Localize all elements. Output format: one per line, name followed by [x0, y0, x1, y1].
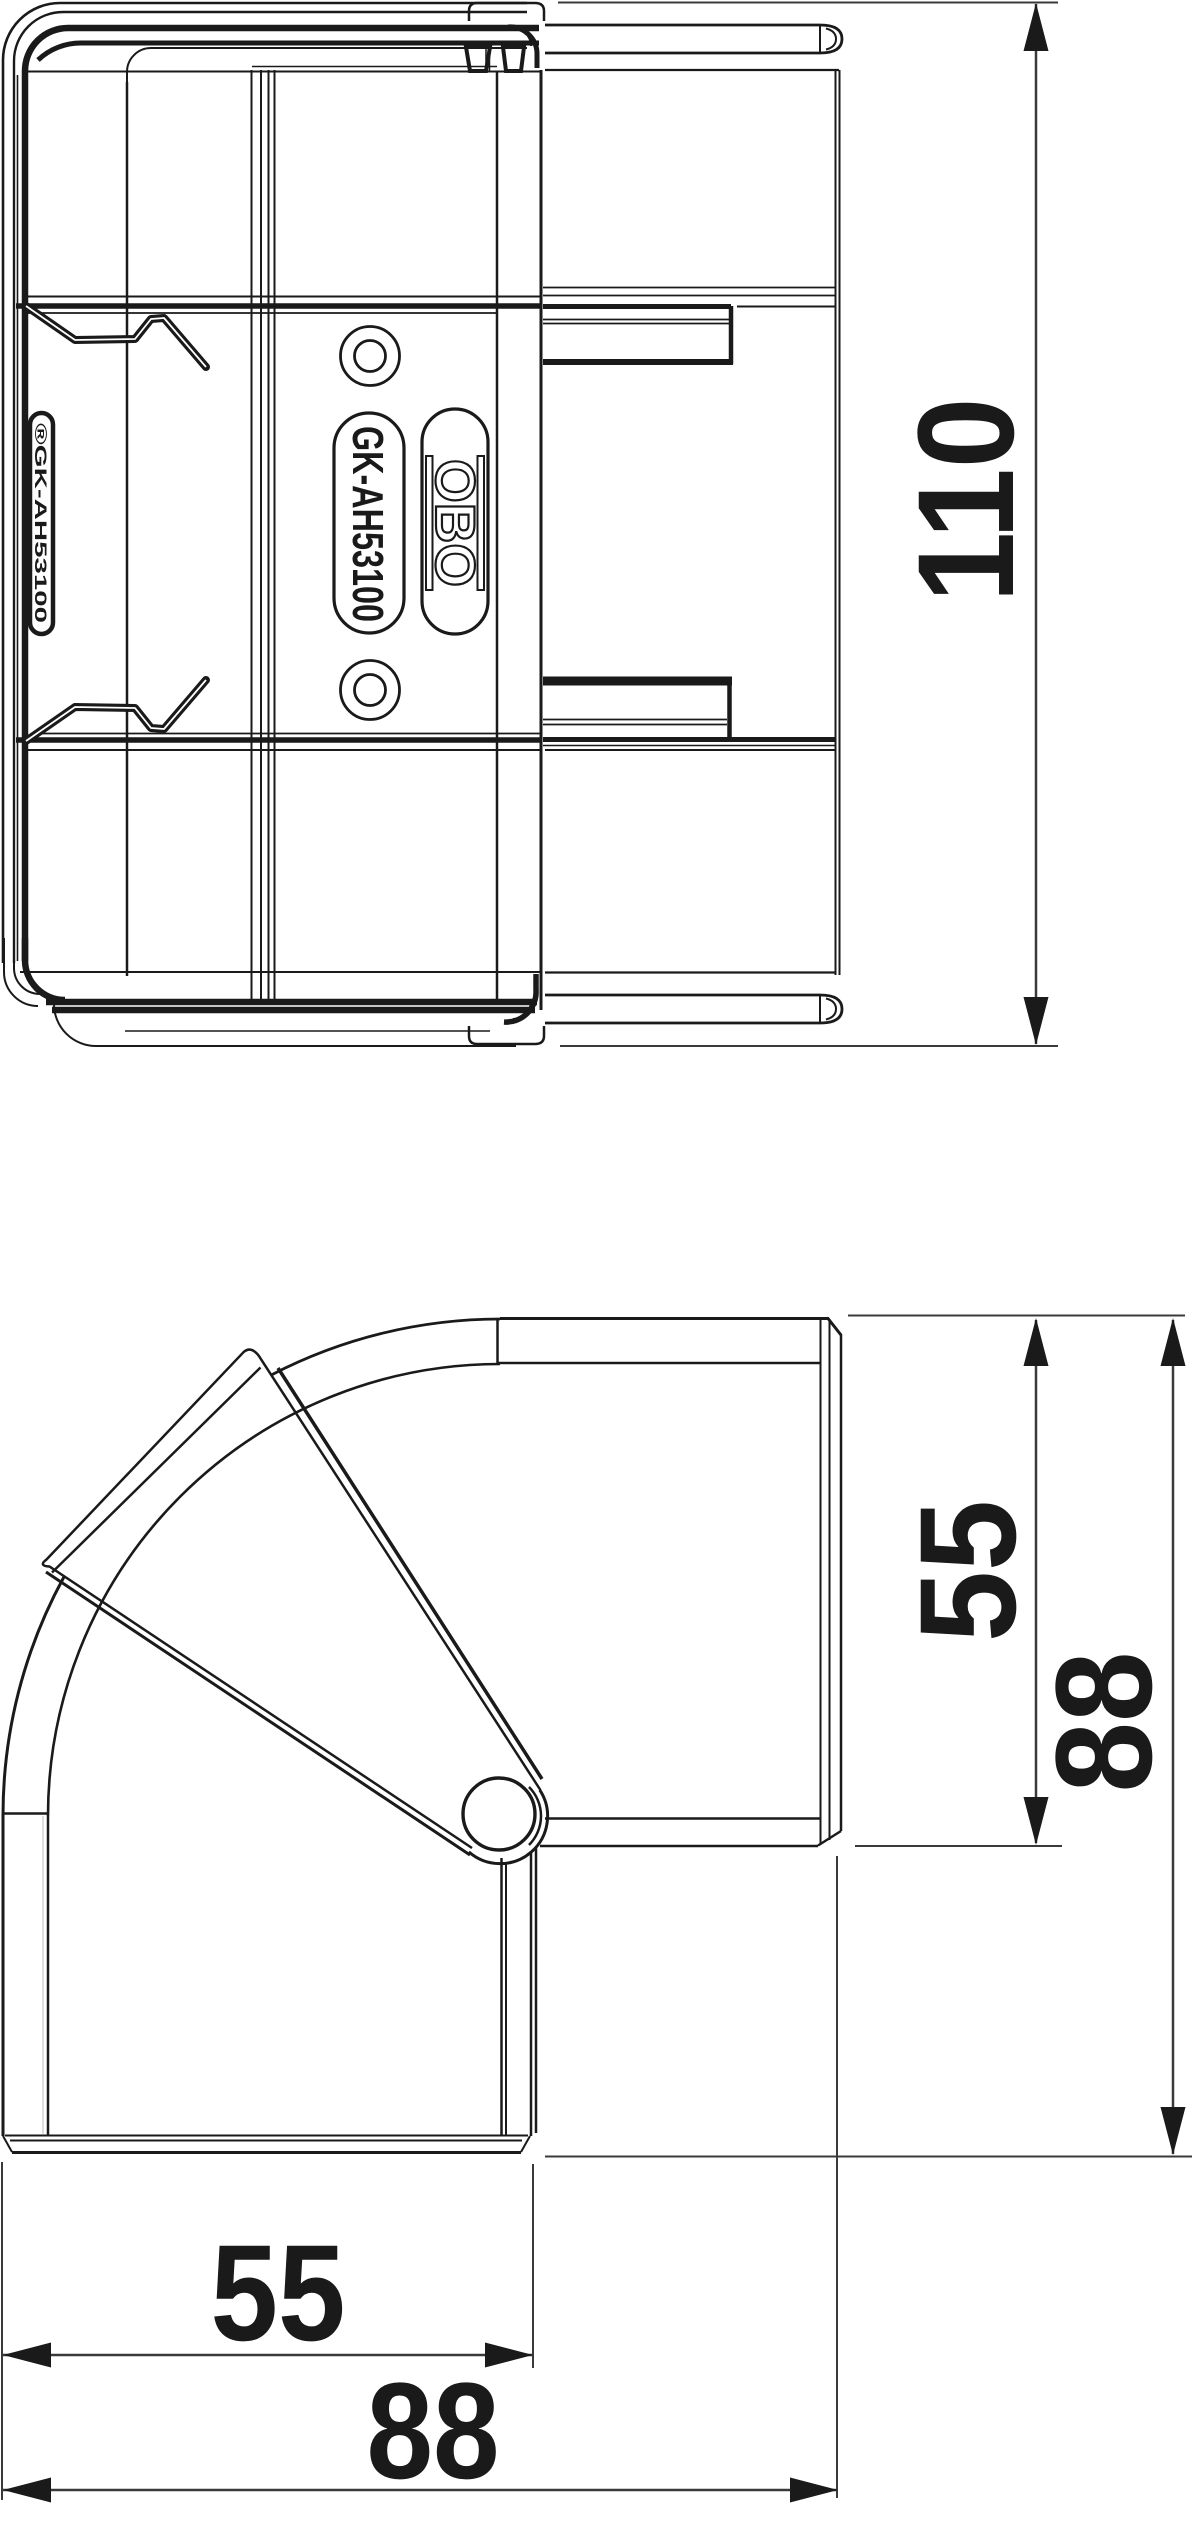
svg-text:OBO: OBO [424, 459, 487, 587]
svg-text:55: 55 [892, 1500, 1045, 1642]
svg-text:®GK-AH53100: ®GK-AH53100 [31, 423, 50, 623]
svg-text:55: 55 [211, 2217, 346, 2370]
svg-text:88: 88 [1028, 1652, 1181, 1793]
svg-text:GK-AH53100: GK-AH53100 [343, 426, 392, 622]
svg-text:88: 88 [367, 2355, 500, 2508]
svg-text:110: 110 [890, 398, 1043, 603]
